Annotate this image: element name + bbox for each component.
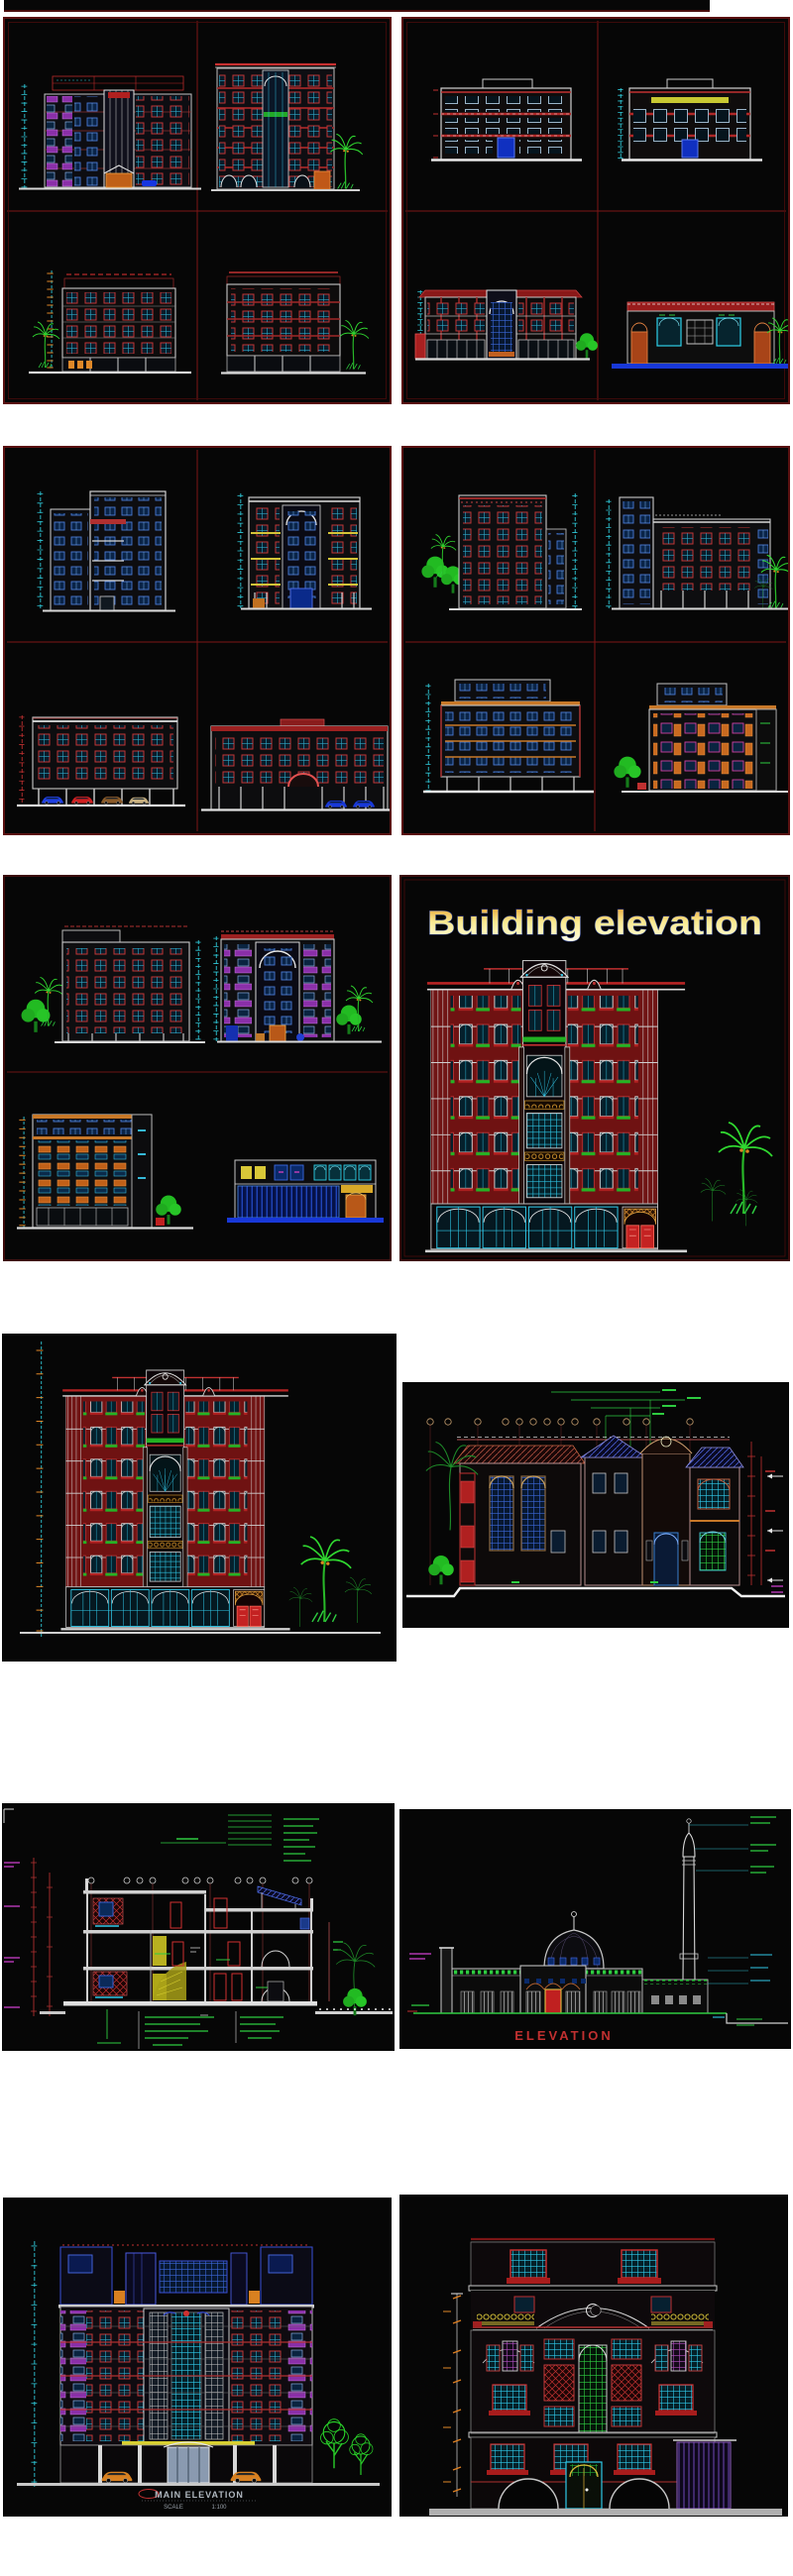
dimension-pole-icon [238,493,244,608]
dimension-pole-icon [47,270,53,370]
sheet5-canvas [5,877,390,1259]
car-icon [42,797,63,805]
elevation-b4 [612,302,788,369]
elevation-a2 [211,64,363,190]
stair-flight [153,1936,167,1966]
villa-elevation [406,1390,785,1596]
sheet6-canvas: Building elevation [401,877,788,1259]
balustrade [651,2313,709,2326]
car-icon [129,798,149,805]
cad-sheet-10: ELEVATION [399,1809,791,2049]
mosque-elevation: ELEVATION [407,1817,788,2043]
main-elevation-label: MAIN ELEVATION [155,2490,244,2500]
elevation-a3 [29,270,191,373]
notes-below-ground [145,2017,283,2045]
sheet2-canvas [403,19,788,402]
elevation-b2 [618,79,762,161]
notes-block [283,1819,319,1861]
elevation-e2 [213,931,382,1042]
sheet1-canvas [5,19,390,402]
elevation-d2 [606,497,788,609]
cad-sheet-5 [3,875,392,1261]
elevation-a4 [221,272,369,374]
hotel-facade-elevation [60,1370,289,1629]
elevation-b1 [431,79,582,161]
cad-sheet-1 [3,17,392,404]
elevation-c1 [38,491,176,611]
dimension-pole-icon [38,491,44,608]
car-icon [142,180,157,186]
elevation-d3 [423,680,594,793]
scale-word: SCALE [164,2505,183,2511]
dimension-pole-icon [572,493,577,608]
tree-icon [321,2419,349,2469]
dimension-pole-icon [606,499,611,608]
cad-sheet-12 [399,2195,788,2517]
car-icon [353,801,375,808]
cad-sheet-11: MAIN ELEVATION SCALE 1:100 [3,2198,392,2517]
cad-sheet-3 [3,446,392,835]
palm-tree-icon [345,1577,372,1623]
cad-sheet-2 [401,17,790,404]
minaret-leader-notes [750,1817,776,1873]
sheet8-canvas [402,1382,789,1628]
elevation-a1 [19,76,201,189]
car-icon [102,2472,133,2483]
shop-sign [68,361,92,369]
car-icon [325,801,347,808]
minaret [683,1857,695,1980]
dimension-pole-icon [425,684,430,793]
elevation-d1 [421,493,582,609]
facade-emblem [183,2310,189,2316]
balustrade [477,2313,534,2326]
sheet4-canvas [403,448,788,833]
elevation-b3 [415,290,598,360]
building-elevation-title: Building elevation [427,905,762,942]
palm-tree-icon [330,134,362,188]
ground-line [429,2509,782,2516]
sheet11-canvas: MAIN ELEVATION SCALE 1:100 [3,2198,392,2517]
cropped-sheet-edge [4,0,710,12]
crescent-icon [687,1819,691,1823]
tree-icon [22,1000,51,1032]
elevation-c4 [201,719,390,810]
grid-bubbles [427,1419,693,1425]
car-icon [231,2472,262,2483]
elevation-c3 [17,715,185,806]
screenshot-page: Building elevation [0,0,793,2576]
palm-tree-icon [340,320,369,369]
sheet10-canvas: ELEVATION [399,1809,791,2049]
elevation-e3 [17,1115,193,1229]
sheet7-canvas [2,1334,396,1662]
dimension-pole-icon [19,1117,25,1228]
dimension-pole-icon [195,940,200,1041]
tree-icon [614,757,640,788]
cad-sheet-8 [402,1382,789,1628]
hotel-facade-elevation [425,961,687,1251]
tree-icon [576,333,598,358]
scale-value: 1:100 [211,2505,227,2511]
ground-line [17,2483,380,2486]
car-icon [101,797,123,805]
cad-sheet-7 [2,1334,396,1662]
building-section [4,1809,393,2049]
cad-sheet-9 [2,1803,395,2051]
tree-icon [428,1556,454,1584]
palm-tree-icon [301,1537,351,1622]
crescent-icon [591,2306,601,2315]
palace-elevation [429,2239,782,2516]
palm-tree-icon [719,1123,772,1214]
mosque-elevation-label: ELEVATION [514,2028,613,2043]
sheet9-canvas [2,1803,395,2051]
car-icon [71,797,93,805]
dimension-pole-icon [19,715,24,806]
apartment-main-elevation: MAIN ELEVATION SCALE 1:100 [17,2241,380,2511]
cad-sheet-4 [401,446,790,835]
elevation-c2 [238,493,373,609]
palm-tree-icon [33,322,59,368]
palm-tree-icon [701,1179,726,1222]
elevation-d4 [614,684,788,792]
dimension-pole-icon [37,1342,44,1637]
sheet12-canvas [399,2195,788,2517]
sheet3-canvas [5,448,390,833]
palm-tree-icon [289,1587,312,1627]
crescent-icon [572,1912,577,1917]
grid-bubbles [88,1878,312,1883]
dimension-pole-icon [32,2241,38,2487]
elevation-e1 [22,926,205,1042]
dimension-pole-icon [618,88,623,160]
tree-icon [350,2434,373,2475]
ground-line [406,1588,785,1596]
garage-door [677,2442,731,2509]
mosque-main-door [545,1989,561,2013]
elevation-e4 [227,1160,384,1223]
level-arrows [767,1474,783,1583]
dimension-pole-icon [213,936,218,1041]
dimension-pole-icon [22,84,28,189]
cad-sheet-6: Building elevation [399,875,790,1261]
